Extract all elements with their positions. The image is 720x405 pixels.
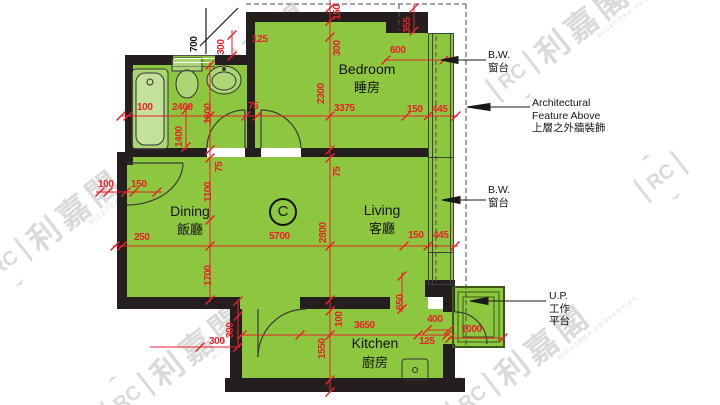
dim-tick (196, 343, 205, 352)
wall-bathroom-left (125, 65, 133, 160)
dim: 75 (333, 167, 343, 177)
dim: 445 (432, 105, 448, 115)
up-door-opening (443, 312, 455, 344)
dim: 75 (215, 162, 225, 172)
kitchen-label: Kitchen (342, 335, 408, 351)
dim: 445 (433, 231, 449, 241)
wall-kitchen-bottom (225, 378, 465, 392)
entrance-opening (240, 297, 300, 309)
bw-mid-callout: B.W. 窗台 (488, 184, 510, 209)
dim: 100 (335, 312, 345, 328)
wall-kitchen-right-lower (443, 344, 455, 378)
wall-kitchen-left (230, 309, 242, 378)
dim: 1600 (204, 103, 214, 124)
bay-window-strip (428, 33, 454, 285)
wall-dining-left (117, 165, 127, 297)
kitchen-label-zh: 廚房 (342, 355, 408, 371)
utility-platform-floor (452, 286, 505, 348)
dim: 700 (190, 37, 200, 53)
dim: 300 (217, 40, 227, 56)
dim: 1550 (318, 338, 328, 359)
ricacorp-logo-icon: RC (625, 140, 698, 213)
wall-living-se-chunk (425, 280, 443, 297)
wall-divider-west (127, 148, 207, 157)
architectural-feature-callout: Architectural Feature Above 上層之外牆裝飾 (532, 97, 606, 135)
dim: 2400 (172, 103, 193, 113)
wall-divider-stub (245, 148, 261, 157)
dim: 125 (252, 35, 268, 45)
wall-living-kitchen (300, 297, 390, 309)
dim: 150 (407, 105, 423, 115)
dim: 1400 (175, 126, 185, 147)
unit-marker: C (269, 198, 297, 226)
dim: 150 (131, 180, 147, 190)
dim: 150 (333, 5, 343, 21)
living-label-zh: 客廳 (352, 221, 412, 237)
living-label: Living (352, 202, 412, 218)
wall-dining-step (117, 152, 133, 165)
wall-dining-bottom (117, 297, 240, 309)
bedroom-label: Bedroom (331, 61, 403, 77)
dim: 3650 (354, 321, 375, 331)
ricacorp-logo-icon: RC (0, 227, 41, 300)
wall-kitchen-right-upper (443, 280, 455, 312)
dim: 300 (226, 323, 236, 339)
callout-arrows (441, 57, 546, 305)
bedroom-label-zh: 睡房 (331, 80, 403, 96)
bw-top-callout: B.W. 窗台 (488, 49, 510, 74)
dim: 125 (419, 337, 435, 347)
dim: 2300 (317, 83, 327, 104)
dim: 250 (134, 233, 150, 243)
dining-label-zh: 飯廳 (158, 222, 222, 238)
dim: 650 (396, 295, 406, 311)
bathroom-window (173, 55, 215, 67)
ricacorp-logo-icon: RC (91, 362, 164, 405)
dim: 5700 (269, 232, 290, 242)
dim: 150 (408, 231, 424, 241)
dim: 1100 (204, 182, 214, 202)
wall-divider-east (301, 148, 428, 157)
up-callout: U.P. 工作 平台 (549, 290, 570, 328)
dim: 75 (248, 102, 258, 112)
dining-label: Dining (158, 203, 222, 219)
floor-plan: RC 利嘉閣 RICACORP PROPERTIES RC 利嘉閣 RICACO… (0, 0, 720, 405)
dim: 300 (333, 41, 343, 57)
dim: 355 (403, 18, 413, 34)
dim: 1000 (461, 325, 482, 335)
dim-tick (228, 31, 237, 40)
dim: 1700 (204, 265, 214, 286)
dim: 2800 (319, 222, 329, 243)
dim: 3375 (334, 104, 355, 114)
dim: 100 (137, 103, 153, 113)
dim: 300 (209, 337, 225, 347)
dim: 100 (98, 180, 114, 190)
watermark: RC (625, 140, 698, 213)
dim: 600 (390, 46, 406, 56)
dim: 400 (427, 315, 443, 325)
